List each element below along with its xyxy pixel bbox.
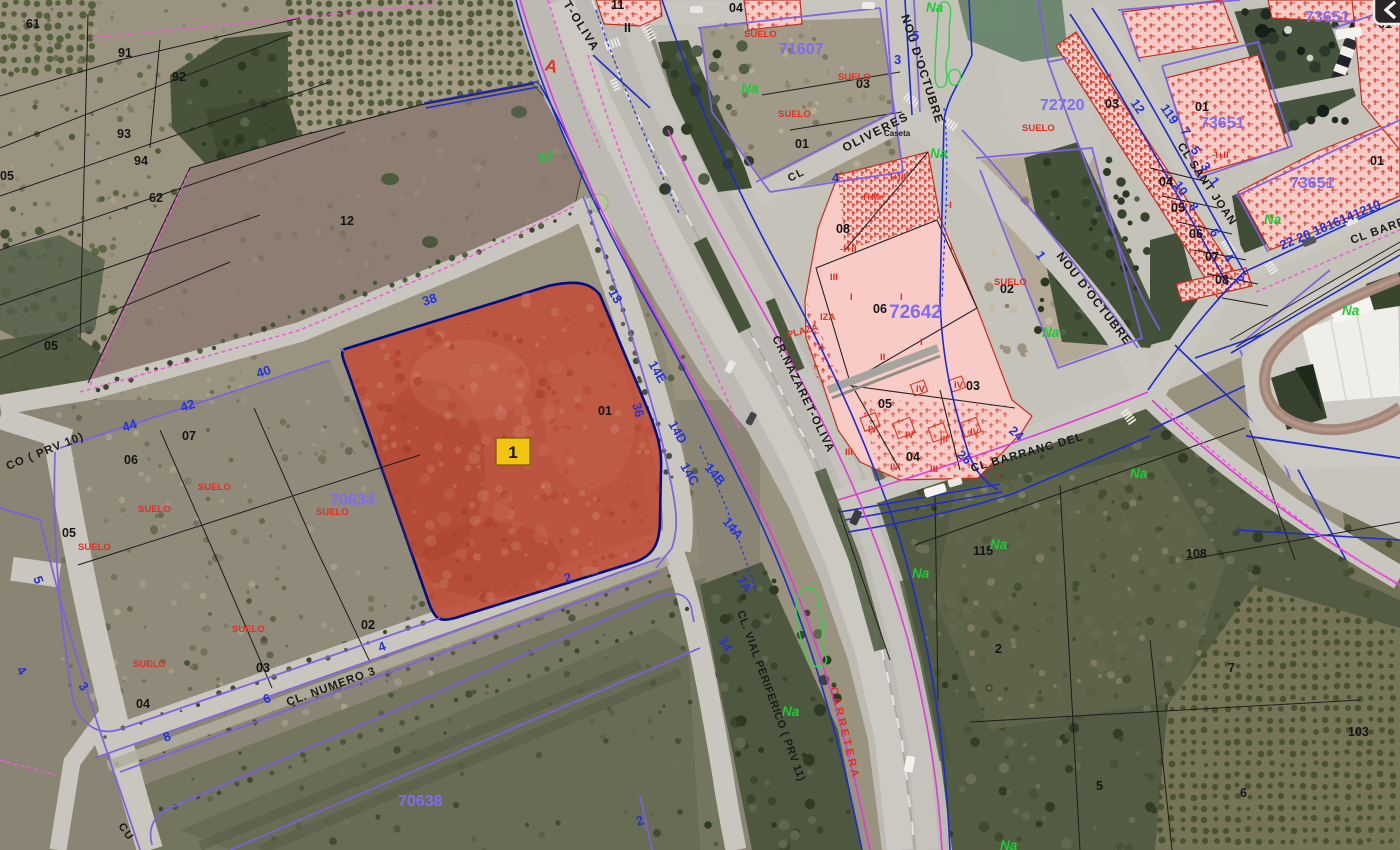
svg-text:-I+II: -I+II [840,244,857,255]
svg-text:IV: IV [905,430,915,441]
svg-text:06: 06 [1189,227,1203,241]
svg-text:SUELO: SUELO [744,29,777,40]
svg-text:Na: Na [782,704,800,719]
svg-text:SUELO: SUELO [778,109,811,120]
svg-text:IV: IV [954,380,964,391]
svg-text:3: 3 [894,52,901,67]
svg-text:5: 5 [1096,779,1103,793]
svg-text:Na: Na [990,537,1008,552]
svg-text:03: 03 [966,379,980,393]
svg-text:5: 5 [912,28,919,43]
svg-text:SUELO: SUELO [198,482,231,493]
svg-text:4: 4 [832,170,840,185]
svg-text:I: I [950,242,953,253]
svg-text:III: III [845,447,853,458]
svg-text:06: 06 [873,302,887,316]
svg-text:I: I [1390,164,1393,175]
svg-text:05: 05 [878,397,892,411]
svg-text:I: I [900,292,903,303]
svg-text:SUELO: SUELO [316,507,349,518]
svg-text:I+III: I+III [890,172,906,183]
svg-text:Na: Na [930,146,948,161]
svg-text:01: 01 [1370,154,1384,168]
svg-text:IV: IV [890,462,900,473]
svg-text:IZA: IZA [820,312,835,323]
svg-text:01: 01 [598,404,612,418]
svg-text:SUELO: SUELO [133,659,166,670]
svg-text:Na: Na [926,0,944,15]
svg-text:III: III [830,272,838,283]
svg-text:72720: 72720 [1040,97,1085,114]
svg-text:SUELO: SUELO [78,542,111,553]
svg-text:Na: Na [912,566,930,581]
svg-text:67: 67 [538,150,555,165]
svg-text:1: 1 [508,443,517,462]
svg-text:Na: Na [1000,838,1018,850]
svg-text:70638: 70638 [398,793,443,810]
svg-text:108: 108 [1186,547,1207,561]
svg-text:-I: -I [946,200,952,211]
svg-text:SUELO: SUELO [1022,123,1055,134]
svg-text:103: 103 [1348,725,1369,739]
svg-text:-I+M+: -I+M+ [860,192,885,203]
svg-text:SUELO: SUELO [232,624,265,635]
svg-text:06: 06 [124,453,138,467]
svg-text:92: 92 [172,70,186,84]
svg-text:7: 7 [1228,661,1235,675]
svg-text:Na: Na [1264,212,1282,227]
svg-text:72642: 72642 [889,302,942,323]
svg-text:▪: ▪ [482,441,485,450]
svg-text:2: 2 [995,642,1002,656]
svg-text:73651: 73651 [1290,175,1335,192]
svg-text:II: II [818,342,823,353]
svg-text:-I+II: -I+II [1212,150,1229,161]
svg-text:71607: 71607 [779,41,824,58]
svg-text:91: 91 [118,46,132,60]
svg-text:04: 04 [136,697,150,711]
svg-text:01: 01 [1195,100,1209,114]
svg-text:05: 05 [1171,201,1185,215]
svg-text:08: 08 [836,222,850,236]
svg-text:05: 05 [62,526,76,540]
svg-text:12: 12 [340,214,354,228]
svg-text:73651.: 73651. [1305,9,1354,26]
svg-text:61: 61 [26,17,40,31]
svg-text:02: 02 [361,618,375,632]
svg-text:IV: IV [868,424,878,435]
svg-text:07: 07 [1205,250,1219,264]
svg-text:Caseta: Caseta [884,129,911,138]
svg-text:III: III [940,434,948,445]
svg-text:IV: IV [970,427,980,438]
svg-text:I: I [920,337,923,348]
svg-text:SUELO: SUELO [994,277,1027,288]
svg-text:01: 01 [795,137,809,151]
svg-text:I: I [850,292,853,303]
svg-text:6: 6 [1240,786,1247,800]
svg-text:03: 03 [256,661,270,675]
svg-text:Na: Na [1042,325,1060,340]
svg-text:93: 93 [117,127,131,141]
svg-text:+III: +III [1098,72,1111,83]
svg-text:94: 94 [134,154,148,168]
svg-text:62: 62 [149,191,163,205]
svg-text:05: 05 [0,169,14,183]
svg-text:SUELO: SUELO [838,72,871,83]
svg-text:II: II [880,352,885,363]
svg-text:IV: IV [916,384,926,395]
svg-text:05: 05 [44,339,58,353]
svg-text:08: 08 [1215,273,1229,287]
svg-text:III: III [930,464,938,475]
svg-text:II: II [624,21,631,35]
svg-text:SUELO: SUELO [138,504,171,515]
svg-text:11: 11 [611,0,624,12]
svg-text:04: 04 [729,1,743,15]
svg-text:07: 07 [182,429,196,443]
svg-text:Na: Na [1130,466,1148,481]
svg-text:Na: Na [741,81,759,96]
svg-text:73651: 73651 [1200,115,1245,132]
svg-text:04: 04 [906,450,920,464]
svg-text:Na: Na [1342,303,1360,318]
svg-text:03: 03 [1105,97,1119,111]
